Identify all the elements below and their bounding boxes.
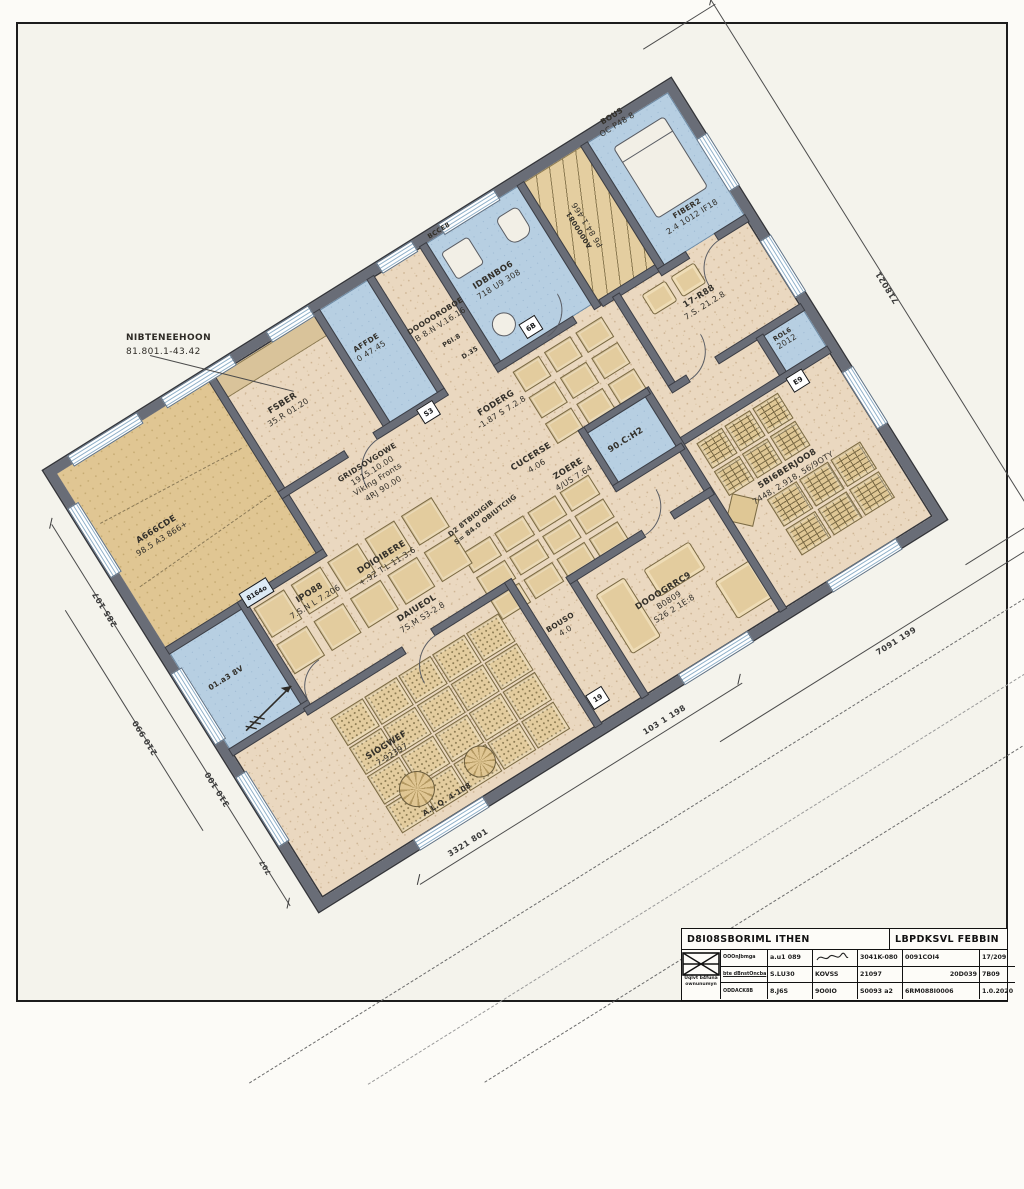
client-name: LBPDKSVL FEBBIN [890, 929, 1007, 949]
signature-scribble [813, 950, 858, 966]
title-block-header: D8I08SBORIML ITHEN LBPDKSVL FEBBIN [682, 929, 1007, 950]
cell: 1.0.2020 [980, 983, 1015, 999]
cell: 7B09 [980, 967, 1015, 983]
cell: KOVSS [813, 967, 858, 983]
row-label: bte dBnstOncba [721, 967, 768, 983]
cell: 3041K-080 [858, 950, 903, 966]
shaft-label: 6B [524, 321, 537, 333]
logo-icon [682, 952, 720, 976]
annotation-line1: NIBTENEEHOON [126, 333, 211, 343]
label-feber: FSBER35.R 01.20 [260, 387, 311, 430]
label-gridsovgowe: GRIDSOVGOWE1915.10.00Viking Fronts4RJ 90… [336, 441, 415, 512]
title-block: D8I08SBORIML ITHEN LBPDKSVL FEBBIN Uqlvt… [681, 928, 1008, 1001]
cell: 17/209 [980, 950, 1015, 966]
label-d35: D.35 [460, 345, 480, 362]
chair [641, 280, 677, 315]
cell: S0093 a2 [858, 983, 903, 999]
row-label: OOOnJbmga [721, 950, 768, 966]
sofa [714, 560, 773, 620]
shaft-label: 19 [591, 692, 604, 704]
annotation-line2: 81.801.1-43.42 [126, 346, 211, 360]
label-foderg: FODERG-1.87 S 7.2.8 [470, 385, 528, 432]
title-row: ODDACK8B 8.J6S 9O0IO S0093 a2 6RM088I000… [721, 983, 1015, 999]
cell: 0091COI4 [903, 950, 980, 966]
door-arc [672, 333, 719, 380]
shaft-label: S3 [422, 406, 435, 418]
cell: a.u1 089 [768, 950, 813, 966]
project-name: D8I08SBORIML ITHEN [682, 929, 890, 949]
title-row: OOOnJbmga a.u1 089 3041K-080 0091COI4 17… [721, 950, 1015, 967]
shaft-label: E9 [792, 375, 804, 387]
cell: 20D039 [903, 967, 980, 983]
logo-caption: Uqlvt b4funa ownunumyn [682, 976, 720, 987]
label-p6l8: P6l.8 [441, 332, 462, 350]
cell: 6RM088I0006 [903, 983, 980, 999]
cell: 9O0IO [813, 983, 858, 999]
row-label: ODDACK8B [721, 983, 768, 999]
firm-logo: Uqlvt b4funa ownunumyn [682, 950, 721, 999]
exterior-annotation: NIBTENEEHOON 81.801.1-43.42 [126, 332, 211, 359]
cell: 8.J6S [768, 983, 813, 999]
cell: S.LU30 [768, 967, 813, 983]
label-bouso: BOUSO4.0 [544, 610, 581, 644]
title-row: bte dBnstOncba S.LU30 KOVSS 21097 20D039… [721, 967, 1015, 984]
door-arc [627, 489, 674, 536]
cell: 21097 [858, 967, 903, 983]
wall [671, 488, 714, 518]
